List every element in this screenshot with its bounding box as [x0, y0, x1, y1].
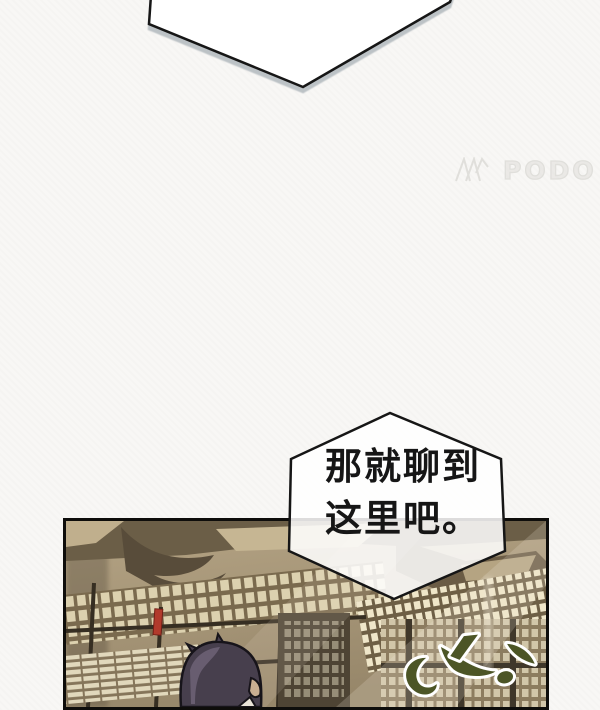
speech-bubble-top [110, 0, 490, 96]
red-scroll [153, 609, 163, 635]
podo-logo-icon [452, 157, 498, 183]
speech-text: 那就聊到 这里吧。 [325, 441, 525, 545]
webtoon-page: PODO [0, 0, 600, 710]
watermark: PODO [452, 153, 600, 187]
speech-text-line2: 这里吧。 [325, 493, 525, 545]
speech-text-line1: 那就聊到 [325, 441, 525, 493]
speech-bubble-top-shape [149, 0, 462, 87]
watermark-text: PODO [503, 156, 597, 185]
